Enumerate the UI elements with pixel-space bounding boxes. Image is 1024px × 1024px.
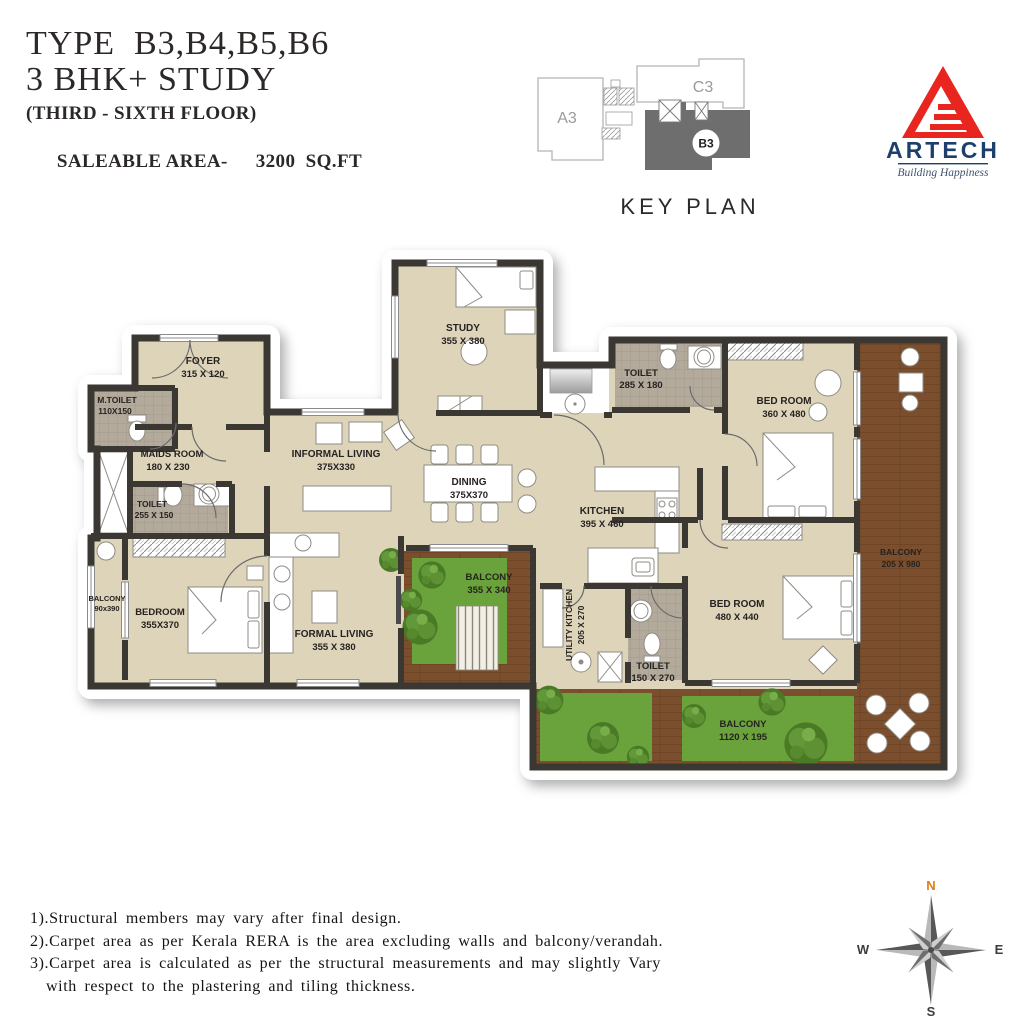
logo-divider [898,163,988,164]
room-label-toilet255: TOILET [137,499,168,509]
window [392,296,399,358]
room-label-balcony1120: BALCONY [720,719,768,730]
room-dims-bedroom480: 480 X 440 [715,612,758,623]
room-label-bedroom480: BED ROOM [710,599,765,610]
note-line: 3).Carpet area is calculated as per the … [30,953,663,976]
window [854,439,861,499]
floor-plan: FOYER 315 X 120 M.TOILET 110X150 MAIDS R… [88,260,945,769]
room-label-mtoilet: M.TOILET [97,395,137,405]
window [427,260,497,267]
room-dims-balcony355: 355 X 340 [467,585,510,596]
saleable-area-label: SALEABLE AREA- [57,151,228,172]
page-title: TYPE B3,B4,B5,B6 [26,26,362,62]
disclaimer-notes: 1).Structural members may vary after fin… [30,908,663,999]
informal-console [303,486,391,511]
informal-chair [316,423,342,444]
room-dims-balcony1120: 1120 X 195 [719,732,768,743]
room-dims-balcony90: 90x390 [94,604,119,613]
room-dims-formal-living: 355 X 380 [312,642,355,653]
note-line: 1).Structural members may vary after fin… [30,908,663,931]
room-dims-toilet150: 150 X 270 [631,673,674,684]
room-label-bedroom355: BEDROOM [135,607,185,618]
entry-landing [543,368,609,414]
patio-chair [866,695,886,715]
bedroom355-side-table [247,566,263,580]
room-label-maids: MAIDS ROOM [141,449,204,460]
room-dims-kitchen: 395 X 460 [580,519,623,530]
key-plan-label-a3: A3 [557,110,577,127]
door-mat [550,369,592,393]
logo-tagline: Building Happiness [897,167,989,179]
logo-brand-text: ARTECH [886,137,1000,163]
page-subtitle: 3 BHK+ STUDY [26,62,362,98]
tv-panel [396,576,401,624]
room-label-bedroom360: BED ROOM [757,396,812,407]
room-label-toilet285: TOILET [624,368,658,379]
room-dims-bedroom360: 360 X 480 [762,409,805,420]
window [302,409,364,416]
key-plan-label-b3: B3 [698,137,714,151]
kitchen-sink [632,558,654,576]
planter [901,348,919,366]
room-dims-maids: 180 X 230 [146,462,189,473]
floor-range: (THIRD - SIXTH FLOOR) [26,103,362,125]
bedroom360-table [815,370,841,396]
wardrobe [722,524,802,540]
room-label-balcony90: BALCONY [88,594,125,603]
study-side-table [505,310,535,334]
dining-ottoman [518,495,536,513]
title-block: TYPE B3,B4,B5,B6 3 BHK+ STUDY (THIRD - S… [26,26,362,195]
brochure-page: TYPE B3,B4,B5,B6 3 BHK+ STUDY (THIRD - S… [0,0,1024,1024]
patio-chair [910,731,930,751]
room-label-study: STUDY [446,323,480,334]
patio-chair [867,733,887,753]
compass-west-label: W [857,942,870,957]
window [122,582,129,638]
window [854,554,861,642]
utility-counter [543,589,563,647]
room-dims-bedroom355: 355X370 [141,620,179,631]
room-label-balcony205: BALCONY [880,547,922,557]
formal-coffee-table [312,591,337,623]
saleable-area: SALEABLE AREA-3200 SQ.FT [26,129,362,195]
key-plan-caption: KEY PLAN [620,194,759,219]
room-dims-study: 355 X 380 [441,336,484,347]
compass-east-label: E [995,942,1004,957]
brand-logo: ARTECH Building Happiness [886,66,1000,179]
dining-ottoman [518,469,536,487]
room-label-formal-living: FORMAL LIVING [295,629,374,640]
saleable-area-value: 3200 SQ.FT [256,151,362,172]
room-label-toilet150: TOILET [636,661,670,672]
room-label-kitchen: KITCHEN [580,506,624,517]
room-dims-informal-living: 375X330 [317,462,355,473]
key-plan-core [602,80,634,139]
window [160,335,218,342]
svg-text:205 X 270: 205 X 270 [576,605,586,644]
compass-center [928,947,934,953]
window [150,680,216,687]
room-label-balcony355: BALCONY [466,572,514,583]
compass-south-label: S [927,1004,936,1019]
compass-rose: N E S W [857,878,1004,1019]
wc-bowl [644,633,660,655]
key-plan-label-c3: C3 [693,79,714,96]
compass-north-label: N [926,878,935,893]
room-dims-foyer: 315 X 120 [181,369,224,380]
note-line: with respect to the plastering and tilin… [30,976,663,999]
informal-chair [349,422,382,442]
planter [97,542,115,560]
room-dims-toilet285: 285 X 180 [619,380,662,391]
patio-chair [909,693,929,713]
note-line: 2).Carpet area as per Kerala RERA is the… [30,931,663,954]
key-plan-unit-c3-outline [637,59,744,108]
room-dims-balcony205: 205 X 980 [882,559,921,569]
planter [902,395,918,411]
wc-bowl [660,349,676,369]
kitchen-counter [595,467,679,491]
key-plan: A3 C3 B3 KEY PLAN [538,59,760,219]
balcony-rug [456,606,498,670]
svg-text:UTILITY KITCHEN: UTILITY KITCHEN [564,589,574,661]
bedroom360-stool [809,403,827,421]
room-label-foyer: FOYER [186,356,221,367]
wardrobe [727,343,803,360]
room-label-dining: DINING [452,477,487,488]
wardrobe [133,538,225,557]
room-dims-toilet255: 255 X 150 [135,510,174,520]
balcony-table [899,373,923,392]
window [430,545,508,552]
window [854,372,861,425]
room-dims-mtoilet: 110X150 [98,406,132,416]
window [297,680,359,687]
window [712,680,790,687]
room-label-informal-living: INFORMAL LIVING [292,449,381,460]
room-dims-dining: 375X370 [450,490,488,501]
